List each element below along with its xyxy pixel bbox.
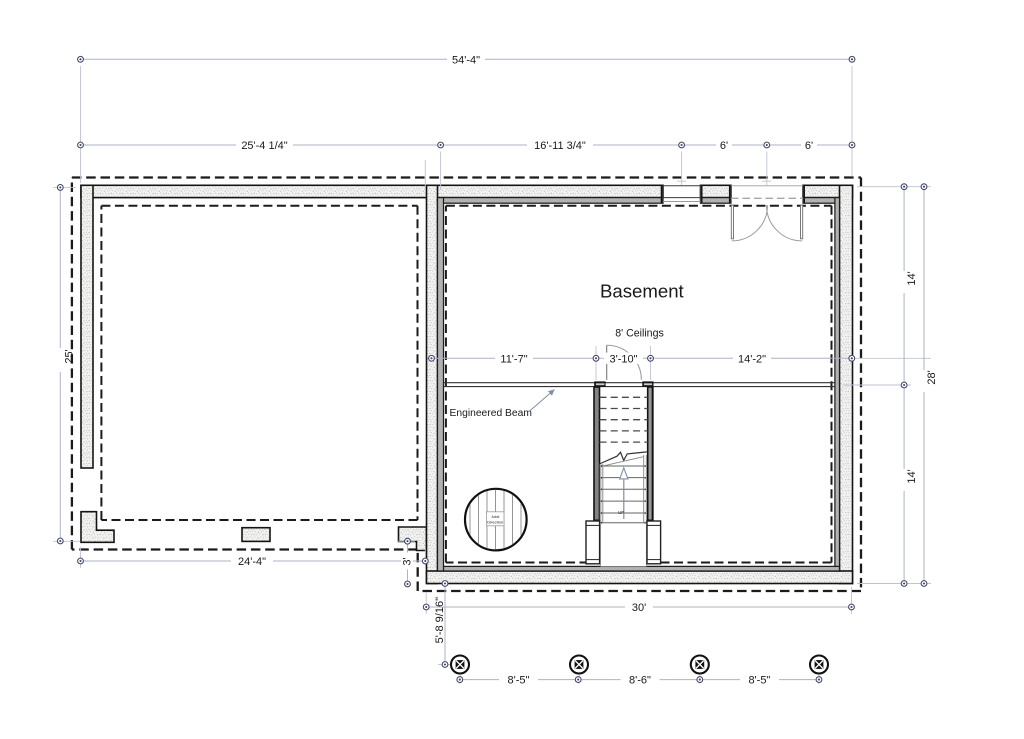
svg-text:28': 28' [926,370,938,384]
svg-text:14'-2": 14'-2" [738,353,766,365]
svg-text:14': 14' [906,271,918,285]
svg-text:25': 25' [63,349,75,363]
svg-text:6': 6' [805,140,813,152]
svg-text:Direction: Direction [487,519,503,524]
svg-text:3': 3' [402,557,414,565]
svg-text:8'-5": 8'-5" [508,675,530,687]
svg-text:6': 6' [720,140,728,152]
svg-text:14': 14' [906,469,918,483]
svg-text:Basement: Basement [600,281,685,302]
svg-text:11'-7": 11'-7" [500,353,527,365]
svg-text:54'-4": 54'-4" [452,54,480,66]
svg-text:30': 30' [632,602,646,614]
svg-text:5'-8 9/16": 5'-8 9/16" [434,597,446,643]
svg-text:25'-4 1/4": 25'-4 1/4" [241,140,287,152]
svg-text:8'-5": 8'-5" [748,675,770,687]
svg-text:UP: UP [618,510,624,515]
svg-text:Joist: Joist [491,514,500,519]
svg-text:Engineered Beam: Engineered Beam [450,408,532,419]
svg-text:8' Ceilings: 8' Ceilings [615,327,664,339]
svg-text:24'-4": 24'-4" [238,556,266,568]
svg-text:16'-11 3/4": 16'-11 3/4" [534,140,586,152]
svg-text:3'-10": 3'-10" [609,353,637,365]
svg-text:8'-6": 8'-6" [629,675,651,687]
